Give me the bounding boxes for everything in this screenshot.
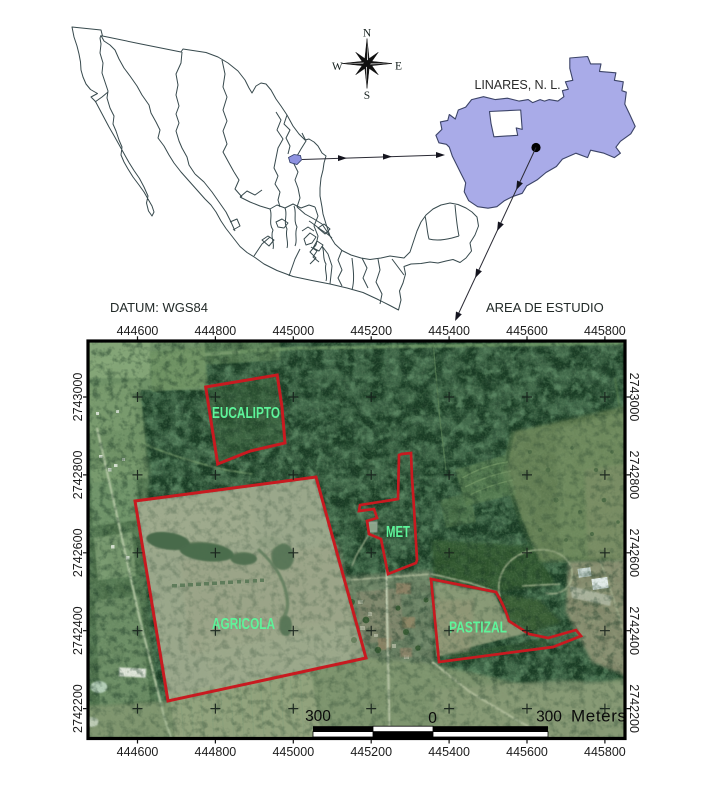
svg-text:PASTIZAL: PASTIZAL (449, 620, 507, 637)
svg-text:S: S (364, 90, 370, 102)
svg-text:300: 300 (536, 709, 562, 726)
svg-text:2742200: 2742200 (627, 684, 641, 733)
svg-text:2742400: 2742400 (71, 606, 85, 655)
svg-text:MET: MET (386, 524, 410, 541)
svg-text:EUCALIPTO: EUCALIPTO (212, 405, 280, 422)
svg-text:445600: 445600 (506, 324, 548, 338)
svg-text:445200: 445200 (350, 745, 392, 759)
svg-text:Meters: Meters (571, 707, 627, 726)
svg-text:445400: 445400 (428, 324, 470, 338)
svg-text:2742200: 2742200 (71, 684, 85, 733)
svg-text:445600: 445600 (506, 745, 548, 759)
svg-text:AREA DE ESTUDIO: AREA DE ESTUDIO (486, 300, 604, 315)
svg-text:2742800: 2742800 (627, 451, 641, 500)
svg-text:DATUM: WGS84: DATUM: WGS84 (110, 300, 208, 315)
svg-text:445200: 445200 (350, 324, 392, 338)
svg-text:300: 300 (305, 708, 331, 725)
svg-text:2742600: 2742600 (627, 528, 641, 577)
svg-text:444600: 444600 (117, 324, 159, 338)
svg-text:E: E (395, 61, 402, 73)
svg-text:444800: 444800 (195, 745, 237, 759)
svg-text:445000: 445000 (272, 745, 314, 759)
svg-text:444600: 444600 (117, 745, 159, 759)
svg-text:445000: 445000 (272, 324, 314, 338)
svg-text:2742800: 2742800 (71, 451, 85, 500)
svg-text:W: W (332, 61, 343, 73)
svg-text:AGRICOLA: AGRICOLA (212, 616, 275, 633)
svg-text:445800: 445800 (584, 745, 626, 759)
svg-text:445800: 445800 (584, 324, 626, 338)
svg-text:2743000: 2743000 (71, 373, 85, 422)
svg-text:2742600: 2742600 (71, 528, 85, 577)
svg-text:N: N (363, 28, 372, 40)
svg-text:445400: 445400 (428, 745, 470, 759)
svg-text:444800: 444800 (195, 324, 237, 338)
svg-text:LINARES, N. L.: LINARES, N. L. (475, 78, 561, 92)
svg-text:2742400: 2742400 (627, 606, 641, 655)
svg-text:2743000: 2743000 (627, 373, 641, 422)
svg-text:0: 0 (428, 710, 437, 727)
